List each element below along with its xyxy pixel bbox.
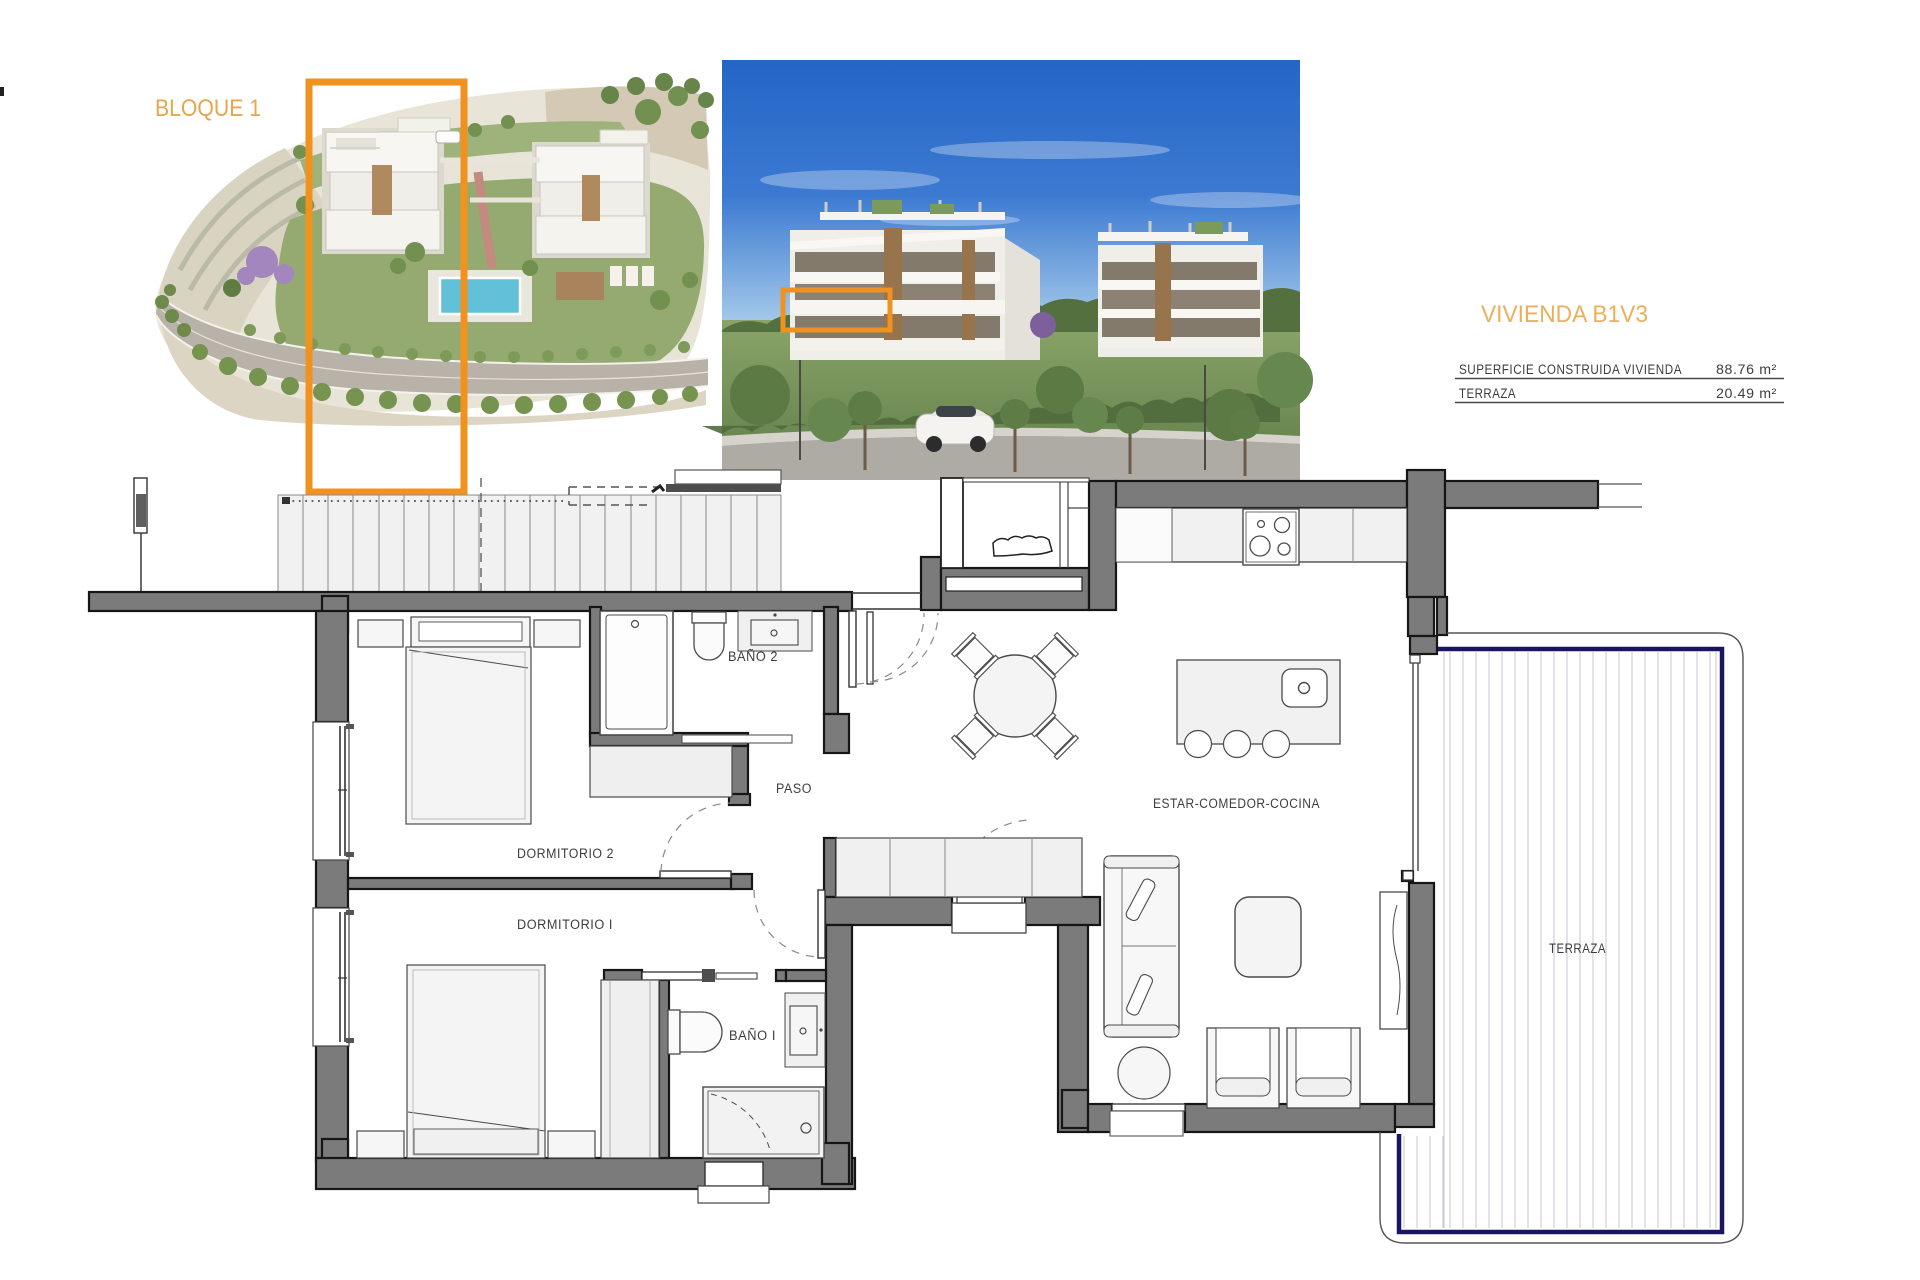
svg-text:SUPERFICIE CONSTRUIDA VIVIENDA: SUPERFICIE CONSTRUIDA VIVIENDA: [1459, 362, 1682, 377]
svg-text:TERRAZA: TERRAZA: [1549, 941, 1606, 956]
svg-text:DORMITORIO I: DORMITORIO I: [517, 917, 613, 932]
svg-text:PASO: PASO: [776, 781, 812, 796]
svg-text:20.49 m²: 20.49 m²: [1716, 386, 1777, 401]
svg-text:BAÑO I: BAÑO I: [729, 1028, 776, 1043]
svg-text:BLOQUE 1: BLOQUE 1: [155, 95, 261, 122]
svg-text:TERRAZA: TERRAZA: [1459, 386, 1516, 401]
svg-text:88.76 m²: 88.76 m²: [1716, 362, 1777, 377]
svg-text:DORMITORIO 2: DORMITORIO 2: [517, 846, 614, 861]
svg-text:VIVIENDA B1V3: VIVIENDA B1V3: [1481, 301, 1648, 328]
svg-text:ESTAR-COMEDOR-COCINA: ESTAR-COMEDOR-COCINA: [1153, 796, 1320, 811]
svg-text:BAÑO 2: BAÑO 2: [728, 649, 778, 664]
